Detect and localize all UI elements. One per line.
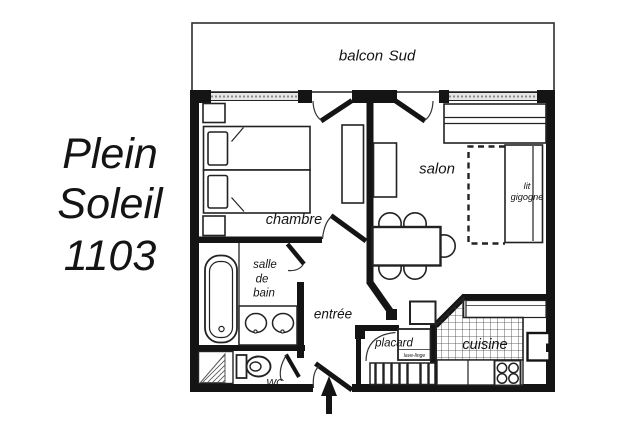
kitchen-top-wall (463, 294, 547, 301)
title-line-2: Soleil (57, 180, 164, 228)
bedroom-door-leaf (331, 216, 366, 242)
closet-label: placard (374, 338, 413, 350)
sink-drain-1 (254, 330, 257, 333)
sink-drain-2 (281, 330, 284, 333)
bed-2-pillow (208, 176, 228, 209)
bathroom-door-leaf (288, 244, 305, 264)
living-shelf (374, 143, 397, 197)
trundle-bed-extension-dashed (469, 147, 506, 244)
nightstand-bottom (203, 216, 225, 236)
title-line-1: Plein (62, 130, 158, 178)
bed-1-pillow (208, 132, 228, 165)
bathroom-right-wall (297, 282, 304, 345)
nightstand-top (203, 104, 225, 123)
entrance-door-leaf (316, 364, 353, 391)
slatted-shelf (370, 363, 435, 385)
closet-left-wall (356, 339, 361, 385)
dining-table (373, 227, 441, 266)
floor-plan-page: Plein Soleil 1103 balcon Sud (0, 0, 640, 426)
bedroom-balcony-door-leaf (321, 101, 352, 122)
wc-fixtures (199, 352, 271, 384)
living-room-label: salon (419, 161, 455, 178)
entrance-arrow (321, 376, 337, 414)
top-wall-post-2 (439, 90, 449, 103)
bathroom-label-line3: bain (253, 288, 275, 300)
top-wall-post-1 (298, 90, 312, 103)
bedroom-bottom-wall (190, 237, 322, 244)
bedroom-wardrobe (342, 125, 364, 203)
bedroom-label: chambre (266, 212, 322, 228)
balcony-label-word1: balcon (339, 48, 383, 65)
title-line-3: 1103 (64, 232, 157, 280)
title-block: Plein Soleil 1103 (57, 130, 164, 280)
kitchen-top-counter (466, 301, 546, 318)
toilet-bowl-inner (250, 362, 261, 371)
entry-diagonal-wall (369, 281, 392, 313)
bottom-wall-left (190, 384, 313, 392)
bedroom-door-arc (323, 217, 332, 240)
closet-wall-post (355, 325, 365, 339)
entry-wall-post (386, 309, 397, 320)
living-balcony-door-leaf (395, 101, 425, 122)
kitchen-label: cuisine (462, 337, 507, 353)
wc-right-wall (297, 345, 304, 358)
toilet-tank (237, 355, 247, 378)
bathroom-label-line2: de (256, 274, 269, 286)
trundle-bed-label-line1: lit (524, 181, 531, 191)
bathroom-door-arc (288, 264, 304, 271)
trundle-bed-label-line2: gigogne (511, 192, 544, 202)
washing-machine-label: lave-linge (404, 353, 426, 359)
bedroom-balcony-door-arc (313, 101, 322, 121)
fridge-handle (546, 344, 553, 353)
appliance-cabinet (410, 302, 436, 325)
top-wall-center-stub (352, 90, 397, 103)
balcony: balcon Sud (192, 23, 554, 92)
bathroom-wc-wall (190, 345, 305, 351)
living-balcony-door-arc (425, 101, 434, 121)
entrance-arrow-shaft (326, 395, 332, 414)
balcony-label-word2: Sud (389, 48, 416, 65)
bathtub-drain (219, 326, 224, 331)
wc-label: WC (266, 377, 284, 389)
bathroom-fixtures (205, 243, 297, 345)
floor-plan: Plein Soleil 1103 balcon Sud (0, 0, 640, 426)
bathroom-label-line1: salle (253, 259, 277, 271)
entry-label: entrée (314, 307, 352, 322)
